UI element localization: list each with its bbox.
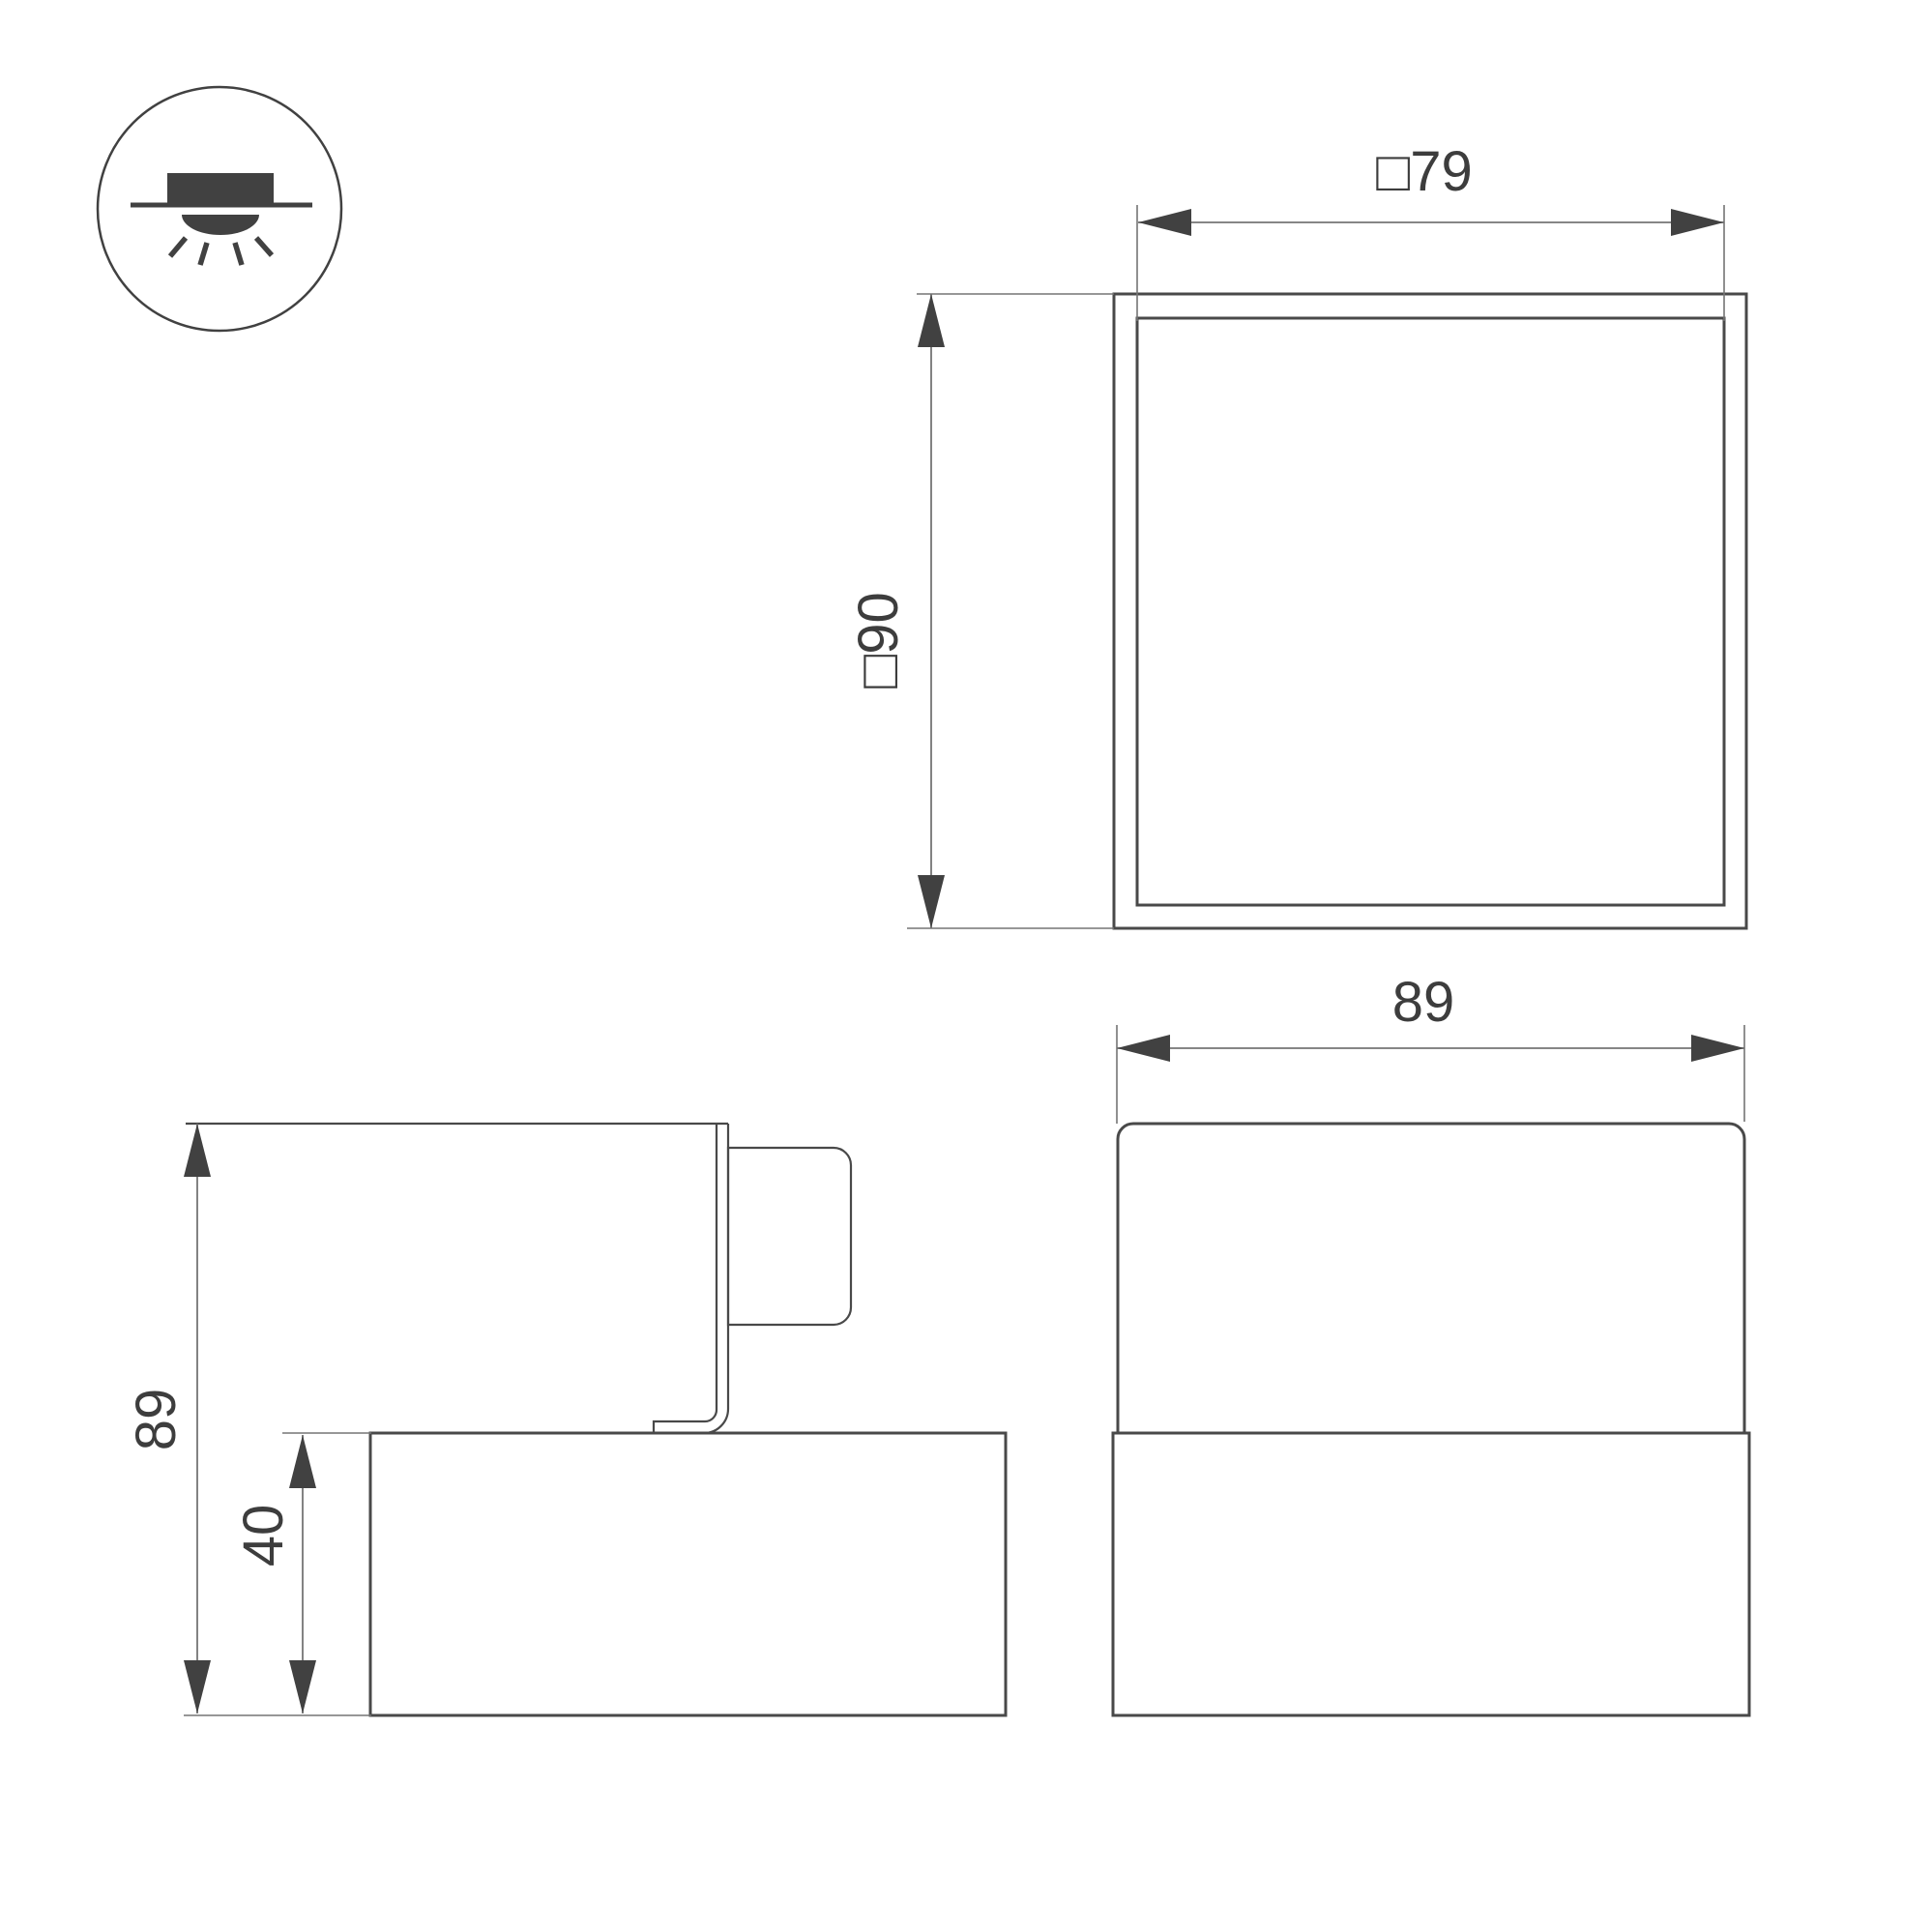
arrowhead-left [1138, 209, 1191, 236]
side-view-mount-plate [654, 1124, 728, 1433]
side-view-lamp-base [370, 1433, 1006, 1715]
arrowhead-right [1691, 1035, 1744, 1062]
icon-ray [256, 238, 272, 255]
icon-fixture-body [167, 173, 274, 203]
side-view [186, 1124, 1006, 1715]
front-view-base [1113, 1433, 1749, 1715]
technical-drawing: □79 □90 89 40 [0, 0, 1932, 1932]
top-view-height-dim: □90 [847, 294, 1114, 928]
arrowhead-left [1117, 1035, 1170, 1062]
top-view-outer-square [1114, 294, 1746, 928]
side-view-base-height-dim: 40 [232, 1433, 371, 1713]
arrowhead-right [1671, 209, 1724, 236]
top-view-inner-square [1137, 318, 1724, 905]
side-view-base-height-label: 40 [232, 1505, 295, 1567]
front-view-width-dim: 89 [1117, 971, 1744, 1124]
surface-downlight-icon [98, 87, 341, 331]
icon-light-dome [182, 215, 259, 235]
front-view [1113, 1124, 1749, 1715]
icon-ray [235, 243, 242, 265]
top-view-height-label: □90 [847, 592, 910, 688]
arrowhead-up [289, 1435, 316, 1488]
technical-drawing-page: □79 □90 89 40 [0, 0, 1932, 1932]
arrowhead-up [918, 294, 945, 347]
side-view-height-label: 89 [125, 1389, 188, 1451]
icon-circle [98, 87, 341, 331]
top-view-width-label: □79 [1376, 140, 1473, 203]
arrowhead-down [289, 1660, 316, 1713]
side-view-height-dim: 89 [125, 1124, 371, 1715]
side-view-driver-box [728, 1148, 851, 1325]
icon-ray [170, 238, 186, 256]
front-view-width-label: 89 [1392, 971, 1455, 1034]
arrowhead-down [184, 1660, 211, 1713]
icon-ray [200, 243, 207, 265]
arrowhead-down [918, 875, 945, 928]
top-view [1114, 294, 1746, 928]
icon-light-rays [170, 238, 272, 265]
arrowhead-up [184, 1124, 211, 1177]
front-view-diffuser [1118, 1124, 1744, 1433]
